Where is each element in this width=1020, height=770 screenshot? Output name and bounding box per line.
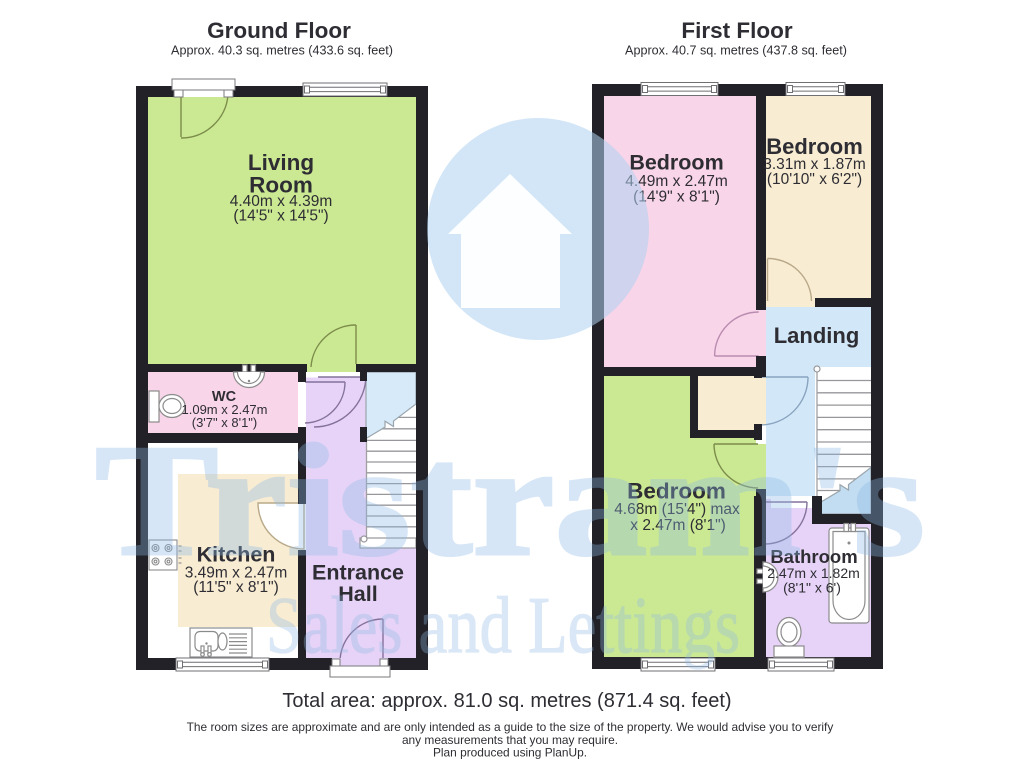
svg-text:Plan produced using PlanUp.: Plan produced using PlanUp. — [433, 746, 587, 760]
svg-text:Landing: Landing — [774, 323, 860, 348]
svg-text:Ground Floor: Ground Floor — [207, 18, 351, 43]
svg-text:First Floor: First Floor — [681, 18, 792, 43]
svg-text:(10'10" x 6'2"): (10'10" x 6'2") — [767, 171, 862, 188]
svg-text:Approx. 40.7 sq. metres (437.8: Approx. 40.7 sq. metres (437.8 sq. feet) — [625, 44, 847, 58]
svg-text:The room sizes are approximate: The room sizes are approximate and are o… — [187, 720, 834, 734]
svg-text:Approx. 40.3 sq. metres (433.6: Approx. 40.3 sq. metres (433.6 sq. feet) — [171, 44, 393, 58]
svg-text:Total area: approx. 81.0 sq. m: Total area: approx. 81.0 sq. metres (871… — [282, 690, 731, 712]
svg-text:Tristram's: Tristram's — [95, 411, 925, 589]
svg-text:(14'5" x 14'5"): (14'5" x 14'5") — [233, 208, 328, 225]
svg-text:(14'9" x 8'1"): (14'9" x 8'1") — [633, 188, 720, 205]
svg-text:Bedroom: Bedroom — [629, 151, 723, 175]
svg-text:Sales and Lettings: Sales and Lettings — [266, 582, 740, 670]
svg-text:Living: Living — [248, 150, 314, 175]
